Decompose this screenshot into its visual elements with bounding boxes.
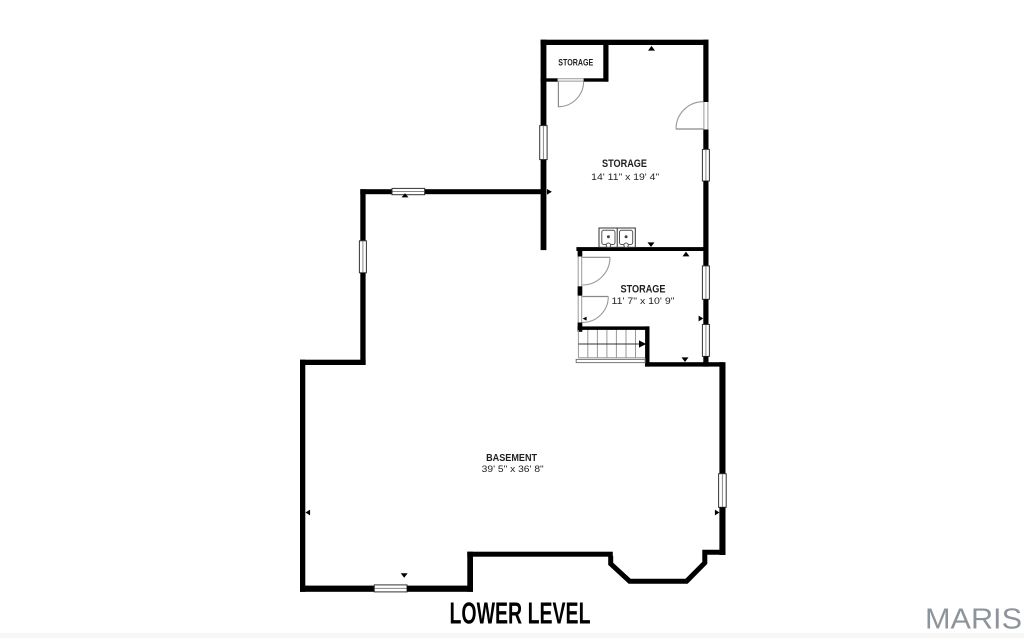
svg-text:LOWER LEVEL: LOWER LEVEL [450, 596, 591, 631]
svg-text:BASEMENT: BASEMENT [486, 452, 538, 464]
svg-text:39' 5" x 36' 8": 39' 5" x 36' 8" [482, 464, 544, 475]
svg-text:14' 11" x 19' 4": 14' 11" x 19' 4" [591, 172, 659, 183]
svg-text:STORAGE: STORAGE [621, 283, 666, 295]
svg-text:MARIS: MARIS [925, 603, 1022, 635]
svg-text:STORAGE: STORAGE [602, 158, 647, 170]
svg-text:11' 7" x 10' 9": 11' 7" x 10' 9" [612, 296, 675, 307]
svg-text:STORAGE: STORAGE [558, 58, 593, 68]
